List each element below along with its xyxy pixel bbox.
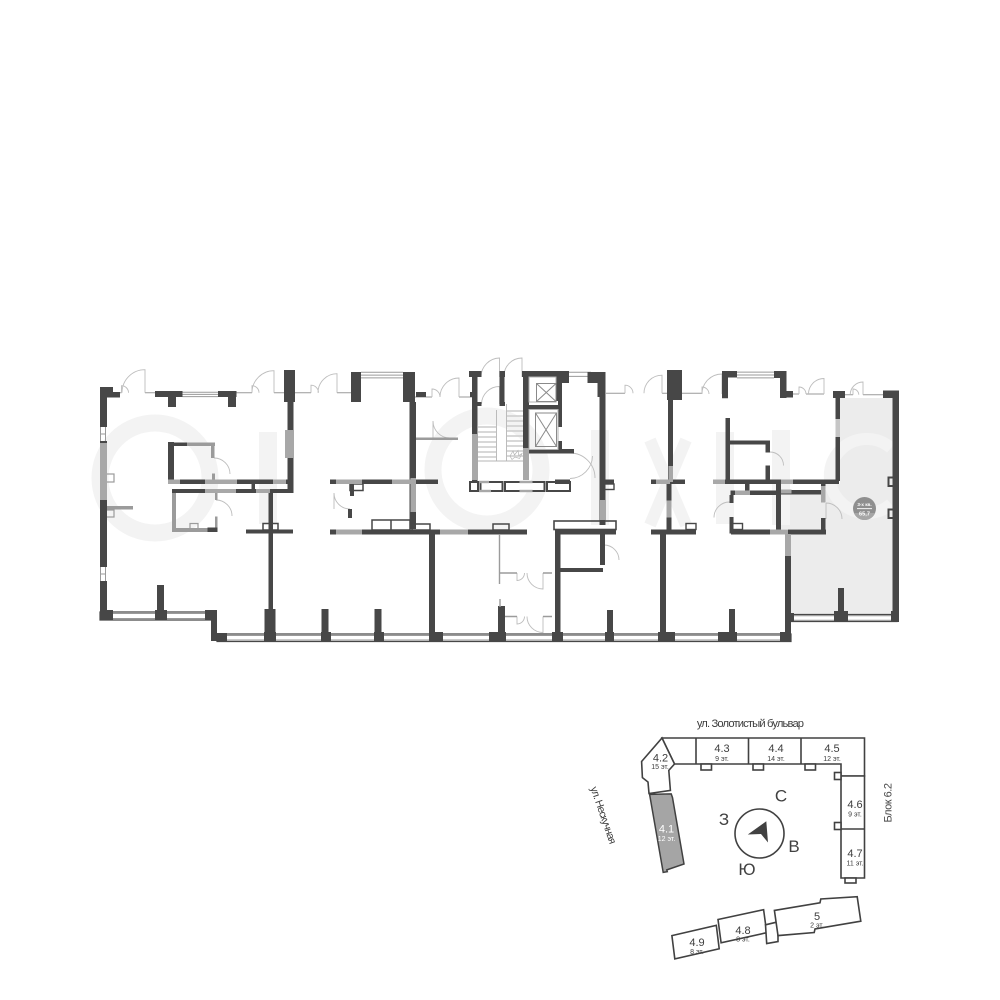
svg-text:Блок 6.2: Блок 6.2 xyxy=(883,783,895,822)
svg-text:5: 5 xyxy=(814,911,820,923)
svg-text:65,7: 65,7 xyxy=(859,512,870,518)
svg-text:4.6: 4.6 xyxy=(847,799,862,811)
svg-text:4.9: 4.9 xyxy=(689,937,704,949)
svg-text:8 эт.: 8 эт. xyxy=(736,937,750,944)
svg-text:8 эт.: 8 эт. xyxy=(690,949,704,956)
svg-text:ул. Золотистый бульвар: ул. Золотистый бульвар xyxy=(697,718,804,730)
svg-text:З: З xyxy=(719,810,729,829)
svg-text:11 эт.: 11 эт. xyxy=(846,861,863,868)
svg-text:В: В xyxy=(788,837,799,856)
svg-text:4.4: 4.4 xyxy=(768,743,783,755)
svg-text:14 эт.: 14 эт. xyxy=(767,756,785,763)
svg-text:15 эт.: 15 эт. xyxy=(651,764,669,771)
svg-text:2 эт.: 2 эт. xyxy=(810,923,824,930)
svg-text:3-х кв.: 3-х кв. xyxy=(857,502,871,507)
svg-text:С: С xyxy=(775,787,787,806)
svg-text:4.7: 4.7 xyxy=(847,848,862,860)
svg-text:9 эт.: 9 эт. xyxy=(715,756,729,763)
svg-text:4.5: 4.5 xyxy=(824,743,839,755)
svg-text:4.8: 4.8 xyxy=(735,925,750,937)
svg-text:12 эт.: 12 эт. xyxy=(658,836,676,843)
svg-text:4.1: 4.1 xyxy=(659,824,674,836)
svg-text:4.3: 4.3 xyxy=(714,743,729,755)
svg-text:12 эт.: 12 эт. xyxy=(823,756,841,763)
svg-text:9 эт.: 9 эт. xyxy=(848,812,862,819)
svg-text:Ю: Ю xyxy=(738,860,755,879)
svg-text:4.2: 4.2 xyxy=(653,753,668,765)
